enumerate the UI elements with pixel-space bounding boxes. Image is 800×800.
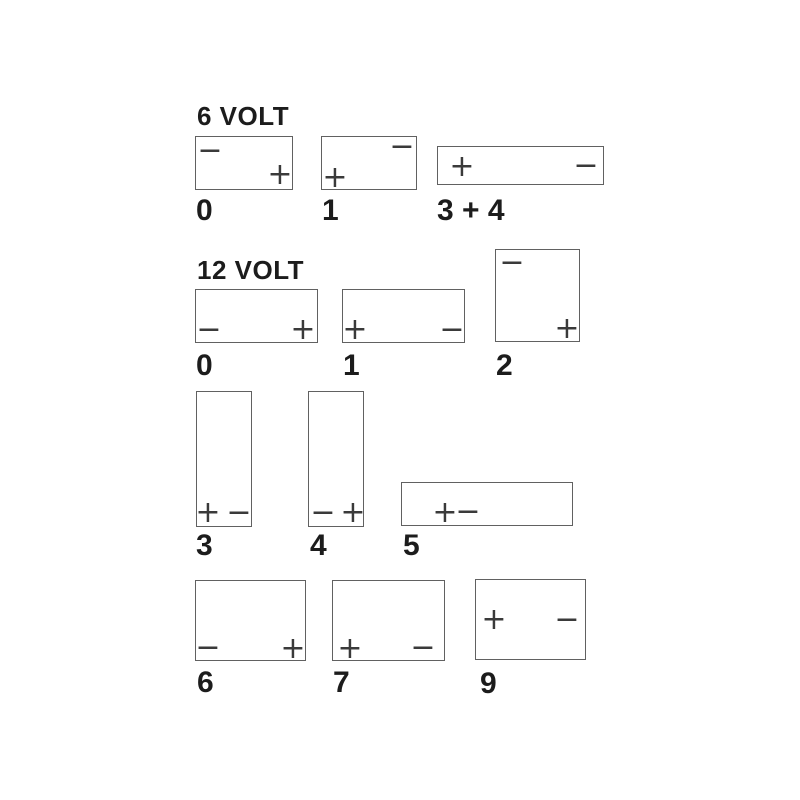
plus-terminal-icon: +	[337, 634, 362, 664]
battery-box-6v-1: −+	[321, 136, 417, 190]
plus-terminal-icon: +	[481, 605, 506, 635]
minus-terminal-icon: −	[195, 633, 220, 663]
minus-terminal-icon: −	[439, 315, 464, 345]
battery-box-12v-2: −+	[495, 249, 580, 342]
minus-terminal-icon: −	[197, 136, 222, 166]
plus-terminal-icon: +	[195, 498, 220, 528]
section-title-6-volt: 6 VOLT	[197, 103, 289, 129]
battery-box-12v-0: −+	[195, 289, 318, 343]
battery-box-12v-1: +−	[342, 289, 465, 343]
box-label-12v-0: 0	[196, 351, 213, 381]
plus-terminal-icon: +	[267, 160, 292, 190]
box-label-12v-7: 7	[333, 668, 350, 698]
battery-box-12v-4: −+	[308, 391, 364, 527]
minus-terminal-icon: −	[389, 132, 414, 162]
section-title-12-volt: 12 VOLT	[197, 257, 304, 283]
battery-box-12v-3: +−	[196, 391, 252, 527]
minus-terminal-icon: −	[455, 497, 480, 527]
plus-terminal-icon: +	[280, 634, 305, 664]
battery-layout-diagram: 6 VOLT−+0−+1+−3 + 412 VOLT−+0+−1−+2+−3−+…	[0, 0, 800, 800]
minus-terminal-icon: −	[196, 315, 221, 345]
box-label-12v-4: 4	[310, 531, 327, 561]
battery-box-6v-3-4: +−	[437, 146, 604, 185]
minus-terminal-icon: −	[226, 498, 251, 528]
minus-terminal-icon: −	[310, 498, 335, 528]
box-label-12v-5: 5	[403, 531, 420, 561]
box-label-12v-6: 6	[197, 668, 214, 698]
plus-terminal-icon: +	[554, 314, 579, 344]
box-label-6v-3-4: 3 + 4	[437, 196, 505, 226]
plus-terminal-icon: +	[342, 315, 367, 345]
minus-terminal-icon: −	[573, 151, 598, 181]
box-label-12v-1: 1	[343, 351, 360, 381]
battery-box-6v-0: −+	[195, 136, 293, 190]
plus-terminal-icon: +	[449, 152, 474, 182]
box-label-12v-2: 2	[496, 351, 513, 381]
plus-terminal-icon: +	[290, 315, 315, 345]
minus-terminal-icon: −	[499, 248, 524, 278]
plus-terminal-icon: +	[322, 163, 347, 193]
battery-box-12v-9: +−	[475, 579, 586, 660]
minus-terminal-icon: −	[554, 605, 579, 635]
box-label-6v-0: 0	[196, 196, 213, 226]
battery-box-12v-6: −+	[195, 580, 306, 661]
minus-terminal-icon: −	[410, 633, 435, 663]
box-label-12v-3: 3	[196, 531, 213, 561]
battery-box-12v-7: +−	[332, 580, 445, 661]
box-label-6v-1: 1	[322, 196, 339, 226]
plus-terminal-icon: +	[340, 498, 365, 528]
box-label-12v-9: 9	[480, 669, 497, 699]
plus-terminal-icon: +	[432, 498, 457, 528]
battery-box-12v-5: +−	[401, 482, 573, 526]
